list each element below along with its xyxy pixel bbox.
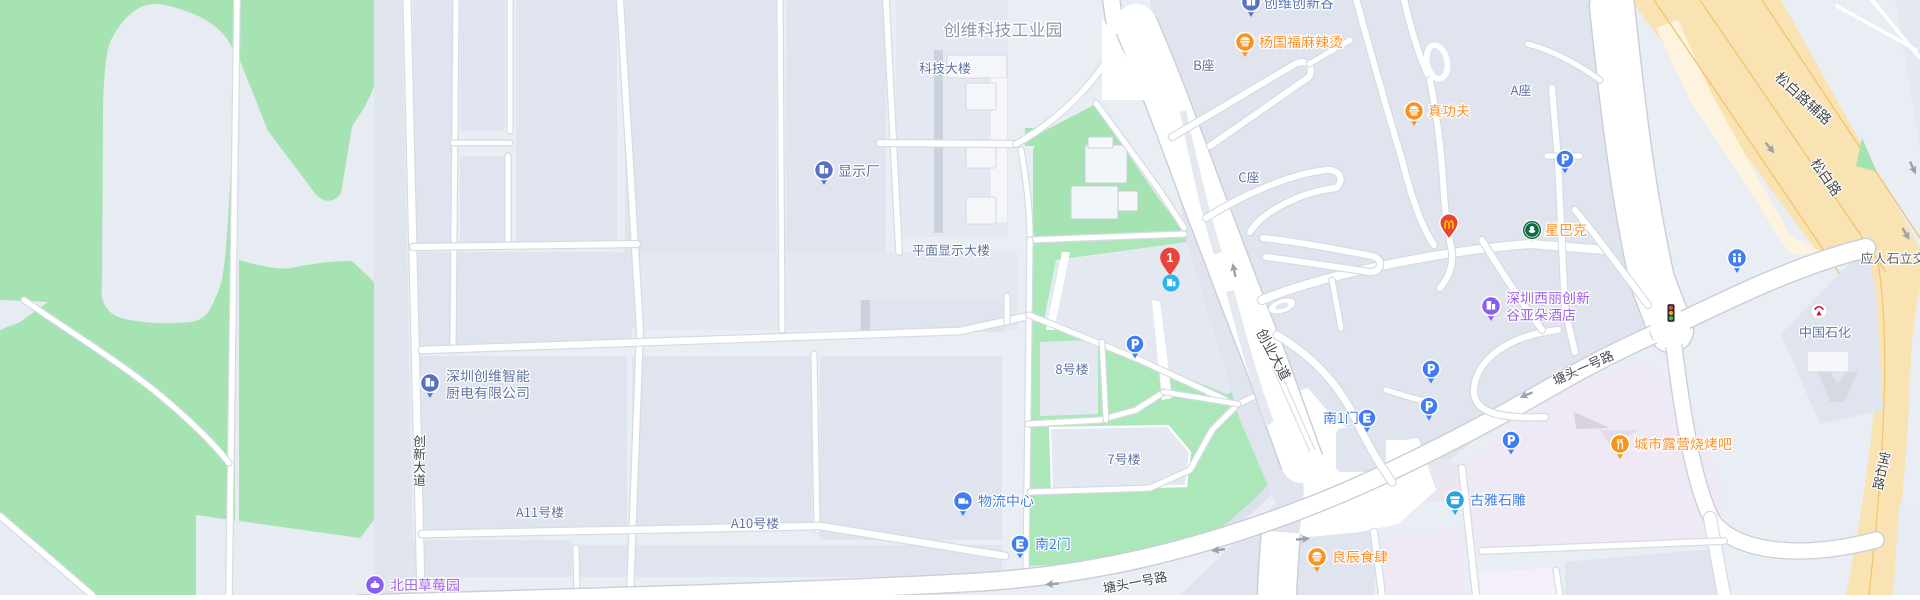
svg-text:1: 1 — [1167, 251, 1174, 265]
